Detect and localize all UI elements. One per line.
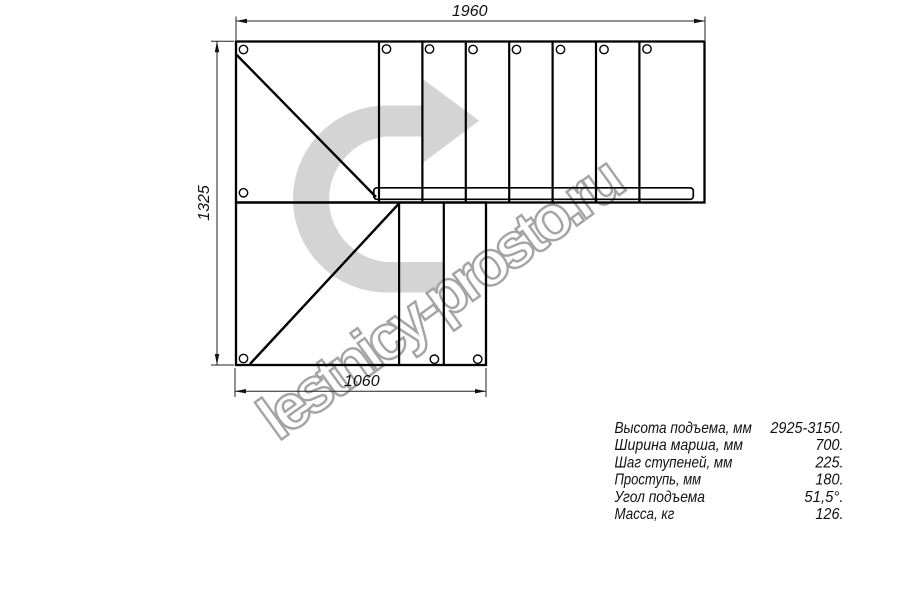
svg-text:Шаг ступеней, мм: Шаг ступеней, мм <box>615 454 733 471</box>
svg-text:2925-3150.: 2925-3150. <box>769 420 843 437</box>
svg-text:1060: 1060 <box>344 373 380 390</box>
svg-text:Проступь, мм: Проступь, мм <box>615 472 702 489</box>
svg-text:700.: 700. <box>815 437 843 454</box>
svg-text:225.: 225. <box>814 454 843 471</box>
svg-text:Масса, кг: Масса, кг <box>615 506 675 523</box>
svg-text:51,5°.: 51,5°. <box>804 489 843 506</box>
svg-text:1960: 1960 <box>452 3 488 20</box>
svg-text:126.: 126. <box>815 506 843 523</box>
svg-text:180.: 180. <box>815 472 843 489</box>
svg-text:Высота подъема, мм: Высота подъема, мм <box>615 420 752 437</box>
svg-text:1325: 1325 <box>196 185 213 221</box>
svg-text:Угол подъема: Угол подъема <box>614 489 705 506</box>
svg-text:Ширина марша, мм: Ширина марша, мм <box>615 437 744 454</box>
